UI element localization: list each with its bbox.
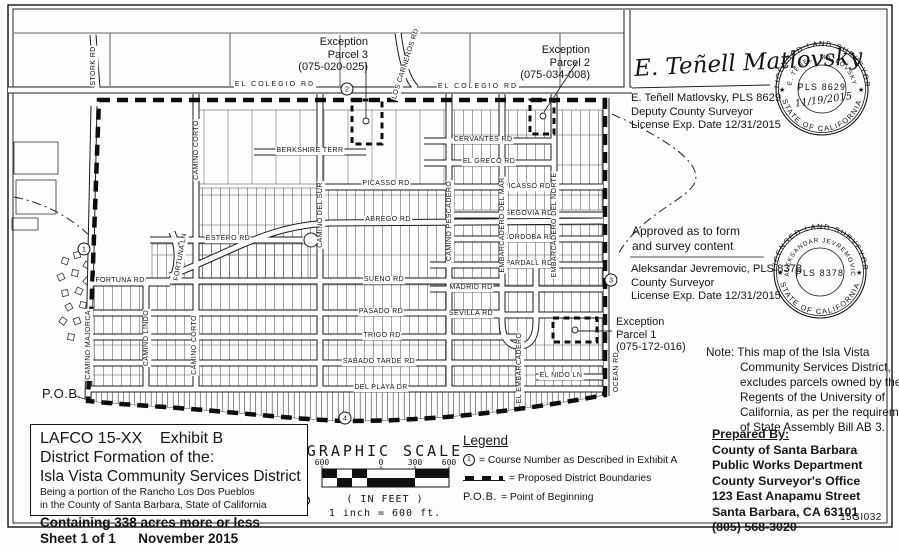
surveyor1-license: License Exp. Date 12/31/2015: [631, 119, 781, 133]
sheet-and-date: Sheet 1 of 1 November 2015: [40, 531, 307, 547]
prepared-by-line: County Surveyor's Office: [712, 474, 863, 490]
building-footprints: [12, 142, 58, 230]
street-label-picasso-a: PICASSO RD: [361, 180, 410, 188]
scale-bar: [322, 466, 449, 487]
street-label-sabado: SABADO TARDE RD: [342, 358, 416, 366]
street-label-cervantes: CERVANTES RD: [453, 136, 514, 144]
course-number-4: 4: [339, 412, 352, 425]
approval-line1: Approved as to form: [632, 224, 740, 239]
star-icon: ★: [858, 86, 864, 94]
exhibit-title: LAFCO 15-XX Exhibit B: [40, 429, 307, 448]
street-label-del-playa: DEL PLAYA DR: [353, 384, 408, 392]
boundary-line-icon: [463, 475, 505, 482]
graphic-scale-title: GRAPHIC SCALE: [307, 442, 463, 460]
exception-parcel-2-callout: Exception Parcel 2 (075-034-008): [455, 44, 590, 82]
exception-1-apn: (075-172-016): [616, 341, 686, 354]
prepared-by-line: County of Santa Barbara: [712, 443, 863, 459]
surveyor1-name: E. Teñell Matlovsky, PLS 8629: [631, 92, 781, 106]
exception-3-line1: Exception: [240, 36, 368, 49]
street-label-madrid: MADRID RD: [448, 284, 493, 292]
surveyor1-signoff: E. Teñell Matlovsky, PLS 8629 Deputy Cou…: [631, 92, 781, 133]
course-number-3: 3: [605, 274, 618, 287]
rancho-description: Being a portion of the Rancho Los Dos Pu…: [40, 487, 307, 499]
street-label-el-colegio-a: EL COLEGIO RD: [234, 81, 316, 89]
course-number-1: 1: [78, 243, 91, 256]
street-label-emb-del-norte: EMBARCADERO DEL NORTE: [551, 172, 559, 279]
note-line: Note: This map of the Isla Vista: [706, 345, 898, 360]
legend-boundary-text: = Proposed District Boundaries: [509, 473, 651, 484]
district-name: Isla Vista Community Services District: [40, 467, 307, 486]
course-number-icon: 1: [463, 454, 475, 466]
prepared-by-line: 123 East Anapamu Street: [712, 489, 863, 505]
scale-units: ( IN FEET ): [346, 494, 423, 505]
stamp1-pls-number: PLS 8629: [798, 82, 846, 92]
exception-parcel-1-callout: Exception Parcel 1 (075-172-016): [616, 316, 686, 354]
pob-symbol: P.O.B.: [463, 491, 497, 503]
drawing-number: 15GI032: [840, 512, 882, 523]
exception-2-apn: (075-034-008): [455, 69, 590, 82]
street-label-segovia: SEGOVIA RD: [504, 210, 553, 218]
county-description: in the County of Santa Barbara, State of…: [40, 500, 307, 512]
surveyor2-license: License Exp. Date 12/31/2015: [631, 290, 802, 304]
star-icon: ★: [856, 269, 862, 277]
scale-ratio: 1 inch = 600 ft.: [329, 508, 441, 519]
street-label-pasado: PASADO RD: [358, 308, 404, 316]
scale-tick: 600: [442, 458, 456, 467]
note-line: California, as per the requirements: [740, 405, 898, 420]
scale-tick: 300: [408, 458, 422, 467]
formation-title: District Formation of the:: [40, 448, 307, 467]
course-number-2: 2: [341, 83, 354, 96]
note-line: Regents of the University of: [740, 390, 898, 405]
street-label-sevilla: SEVILLA RD: [448, 310, 494, 318]
exception-1-line2: Parcel 1: [616, 329, 686, 342]
legend: Legend 1 = Course Number as Described in…: [463, 433, 677, 510]
street-label-pardall: PARDALL RD: [504, 260, 553, 268]
street-label-sueno: SUENO RD: [363, 276, 405, 284]
street-label-el-nido: EL NIDO LN: [539, 372, 584, 380]
street-label-picasso-b: PICASSO RD: [502, 183, 551, 191]
stamp1-handwritten-date: 11/19/2015: [794, 91, 853, 110]
legend-pob-row: P.O.B. = Point of Beginning: [463, 491, 677, 503]
street-label-camino-pescadero: CAMINO PESCADERO: [446, 180, 454, 262]
street-label-el-colegio-b: EL COLEGIO RD: [437, 83, 519, 91]
street-label-camino-lindo: CAMINO LINDO: [143, 309, 151, 367]
street-label-camino-majorca: CAMINO MAJORCA: [85, 309, 93, 381]
street-label-abrego: ABREGO RD: [364, 216, 412, 224]
street-label-estero: ESTERO RD: [205, 235, 251, 243]
street-label-ocean-rd: OCEAN RD: [613, 351, 621, 393]
exception-3-apn: (075-020-025): [240, 61, 368, 74]
surveyor2-title: County Surveyor: [631, 277, 802, 291]
surveyor1-title: Deputy County Surveyor: [631, 106, 781, 120]
note-line: Community Services District,: [740, 360, 898, 375]
exception-2-line1: Exception: [455, 44, 590, 57]
prepared-by-heading: Prepared By:: [712, 427, 863, 443]
scale-tick: 0: [379, 458, 384, 467]
signature-underline: [632, 85, 770, 88]
surveyor2-name: Aleksandar Jevremovic, PLS 8378: [631, 263, 802, 277]
estero-culdesac-bulb: [304, 233, 318, 247]
surveyor2-signoff: Aleksandar Jevremovic, PLS 8378 County S…: [631, 263, 802, 304]
street-label-camino-del-sur: CAMINO DEL SUR: [317, 181, 325, 249]
street-label-cordoba: CORDOBA RD: [502, 234, 555, 242]
title-block: LAFCO 15-XX Exhibit B District Formation…: [30, 424, 308, 516]
legend-course-text: = Course Number as Described in Exhibit …: [479, 455, 677, 466]
street-label-emb-del-mar: EMBARCADERO DEL MAR: [499, 176, 507, 273]
street-label-stork-rd: STORK RD: [90, 45, 98, 86]
street-label-camino-corto-n: CAMINO CORTO: [193, 119, 201, 181]
street-label-camino-corto-s: CAMINO CORTO: [191, 314, 199, 376]
note-line: excludes parcels owned by the: [740, 375, 898, 390]
pob-label: P.O.B.: [42, 386, 82, 401]
survey-map-sheet: LICENSED LAND SURVEYOR E. TEÑELL MATLOVS…: [0, 0, 899, 551]
exception-1-line1: Exception: [616, 316, 686, 329]
exclusion-note: Note: This map of the Isla Vista Communi…: [706, 345, 898, 435]
approval-line2: and survey content: [632, 239, 740, 254]
exception-3-line2: Parcel 3: [240, 49, 368, 62]
scale-tick: 600: [315, 458, 329, 467]
street-label-trigo: TRIGO RD: [362, 332, 401, 340]
legend-boundary-row: = Proposed District Boundaries: [463, 473, 677, 484]
street-label-el-greco: EL GRECO RD: [462, 158, 516, 166]
stamp2-pls-number: PLS 8378: [796, 268, 844, 278]
legend-pob-text: = Point of Beginning: [501, 492, 593, 503]
street-label-berkshire: BERKSHIRE TERR: [276, 147, 345, 155]
exception-2-line2: Parcel 2: [455, 57, 590, 70]
exception-parcel-3-callout: Exception Parcel 3 (075-020-025): [240, 36, 368, 74]
street-label-el-embarcadero: EL EMBARCADERO: [516, 332, 524, 405]
street-label-fortuna-rd: FORTUNA RD: [94, 277, 145, 285]
prepared-by-line: Public Works Department: [712, 458, 863, 474]
legend-course-row: 1 = Course Number as Described in Exhibi…: [463, 454, 677, 466]
acreage-statement: Containing 338 acres more or less: [40, 515, 307, 531]
approval-statement: Approved as to form and survey content: [632, 224, 740, 253]
legend-title: Legend: [463, 433, 677, 448]
